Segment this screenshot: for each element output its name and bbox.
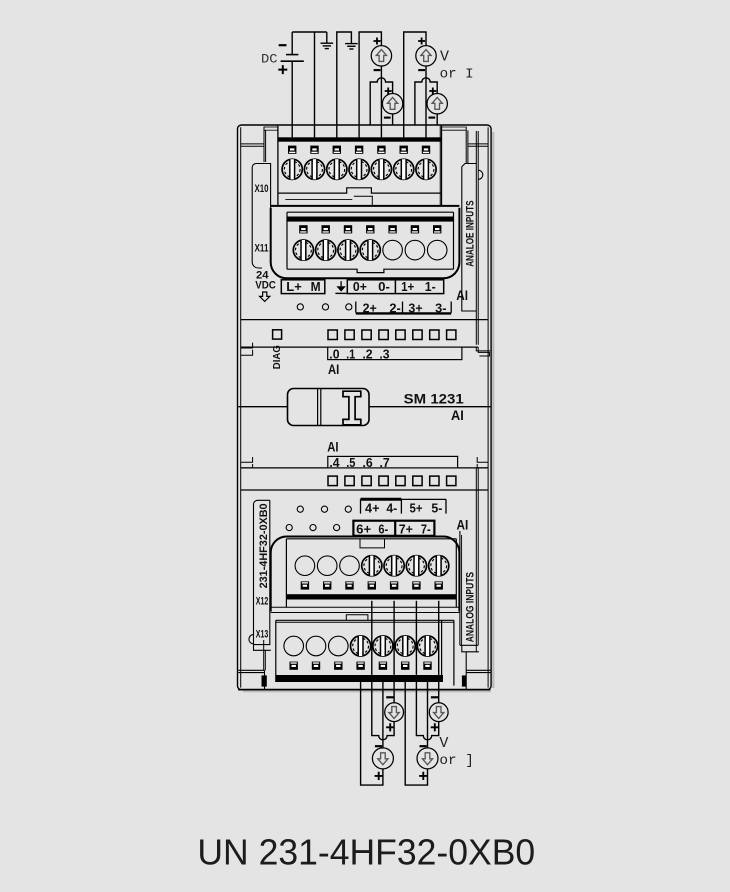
svg-text:UN 231-4HF32-0XB0: UN 231-4HF32-0XB0 (197, 832, 535, 873)
svg-text:7+: 7+ (399, 522, 414, 537)
svg-text:6-: 6- (378, 522, 388, 537)
svg-text:X11: X11 (255, 243, 269, 255)
svg-text:.0: .0 (329, 346, 339, 361)
svg-text:7-: 7- (421, 522, 431, 537)
svg-text:0+: 0+ (353, 279, 367, 294)
svg-text:231-4HF32-0XB0: 231-4HF32-0XB0 (258, 503, 270, 588)
svg-text:3+: 3+ (408, 300, 423, 315)
svg-text:.5: .5 (346, 455, 355, 470)
svg-text:3-: 3- (435, 300, 446, 315)
svg-text:or ]: or ] (439, 753, 474, 769)
svg-text:0-: 0- (378, 279, 390, 294)
svg-text:.2: .2 (362, 346, 372, 361)
svg-text:AI: AI (451, 407, 464, 423)
svg-text:4+: 4+ (365, 501, 380, 516)
svg-text:1-: 1- (425, 279, 436, 294)
svg-text:AI: AI (457, 517, 469, 532)
svg-text:4-: 4- (386, 501, 397, 516)
svg-text:6+: 6+ (356, 522, 371, 537)
svg-text:5+: 5+ (410, 501, 423, 516)
svg-text:DIAG: DIAG (271, 345, 283, 369)
svg-text:V: V (440, 48, 449, 65)
svg-text:or I: or I (440, 67, 474, 83)
svg-text:X10: X10 (255, 183, 269, 195)
svg-text:ANALOG INPUTS: ANALOG INPUTS (464, 572, 476, 642)
svg-text:X12: X12 (256, 595, 268, 607)
svg-text:5-: 5- (431, 501, 442, 516)
svg-text:.7: .7 (380, 455, 390, 470)
svg-text:V: V (439, 735, 448, 752)
svg-text:1+: 1+ (401, 279, 415, 294)
svg-text:M: M (311, 279, 321, 294)
svg-text:.6: .6 (363, 455, 373, 470)
svg-text:.1: .1 (346, 346, 355, 361)
svg-text:AI: AI (328, 362, 339, 377)
svg-text:DC: DC (261, 52, 278, 67)
svg-text:SM 1231: SM 1231 (404, 391, 464, 407)
svg-text:X13: X13 (256, 629, 268, 641)
svg-text:.4: .4 (329, 455, 340, 470)
svg-text:2-: 2- (389, 300, 400, 315)
svg-text:L+: L+ (286, 279, 302, 294)
svg-text:AI: AI (327, 439, 338, 454)
svg-text:2+: 2+ (363, 300, 378, 315)
svg-text:VDC: VDC (255, 280, 276, 292)
svg-text:.3: .3 (379, 346, 389, 361)
svg-text:ANALOE INPUTS: ANALOE INPUTS (464, 200, 476, 266)
